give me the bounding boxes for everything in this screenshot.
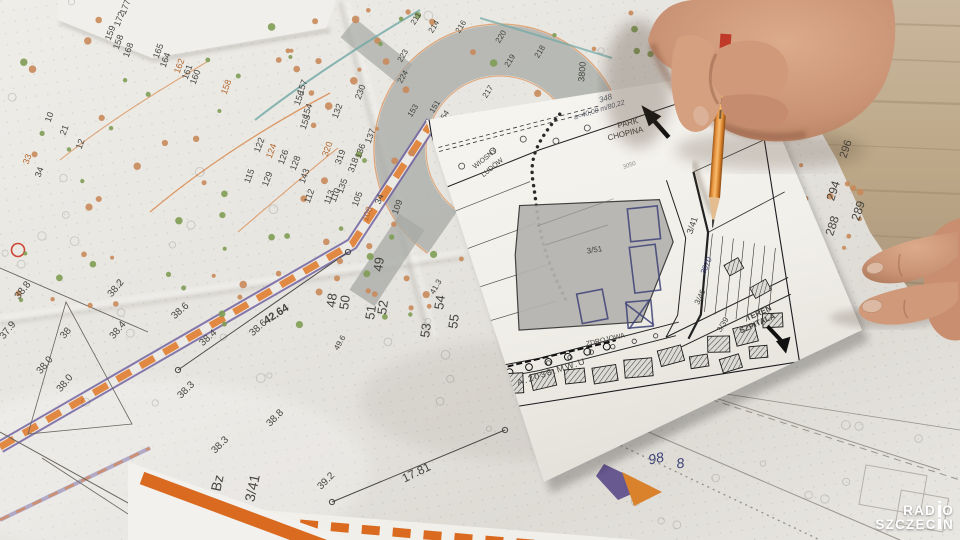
tree-dot <box>352 16 360 24</box>
tree-dot <box>80 179 84 183</box>
tree-dot <box>237 295 242 300</box>
tree-dot <box>337 258 343 264</box>
tree-dot <box>857 189 864 196</box>
tree-dot <box>95 17 102 24</box>
tree-dot <box>325 102 333 110</box>
tree-dot <box>236 74 241 79</box>
tree-dot <box>846 234 851 239</box>
tree-dot <box>309 90 315 96</box>
tree-dot <box>312 18 318 24</box>
tree-dot <box>399 17 404 22</box>
tree-dot <box>323 239 330 246</box>
tree-dot <box>366 243 372 249</box>
tree-dot <box>409 305 414 310</box>
tree-dot <box>339 226 344 231</box>
tree-dot <box>490 59 498 67</box>
tree-dot <box>316 289 323 296</box>
tree-dot <box>378 42 383 47</box>
tree-dot <box>40 131 45 136</box>
map-label: Bz <box>208 473 227 492</box>
tree-dot <box>372 291 378 297</box>
tree-dot <box>592 47 597 52</box>
tree-dot <box>408 150 414 156</box>
tree-dot <box>311 123 317 129</box>
tree-dot <box>29 65 37 73</box>
tree-dot <box>50 297 54 301</box>
radio-szczecin-logo: RADO SZCZECN <box>875 504 954 532</box>
hand-fingers-front <box>671 35 788 132</box>
tree-dot <box>276 271 282 277</box>
tree-dot <box>284 233 290 239</box>
tree-dot <box>146 92 151 97</box>
tree-dot <box>221 191 228 198</box>
tree-dot <box>88 303 93 308</box>
tree-dot <box>268 234 275 241</box>
logo-line-1: RADO <box>875 504 954 518</box>
tree-dot <box>534 90 541 97</box>
tree-dot <box>110 256 114 260</box>
tree-dot <box>288 55 292 59</box>
tree-dot <box>84 37 91 44</box>
map-label: 49 <box>370 256 387 272</box>
tree-dot <box>362 158 367 163</box>
tree-dot <box>366 288 371 293</box>
tree-dot <box>205 58 210 63</box>
map-label: 52 <box>374 299 391 315</box>
tree-dot <box>296 321 303 328</box>
tree-dot <box>404 275 410 281</box>
tree-dot <box>293 66 300 73</box>
tree-dot <box>109 126 113 130</box>
map-label: 50 <box>336 294 353 310</box>
tree-dot <box>219 212 225 218</box>
tree-dot <box>268 23 276 31</box>
tree-dot <box>628 11 633 16</box>
index-finger <box>710 40 789 103</box>
tree-dot <box>350 77 358 85</box>
map-label: 55 <box>445 313 462 329</box>
photo-of-maps-on-table: 1771721591581681651641621611601581021123… <box>0 0 960 540</box>
tree-dot <box>134 163 141 170</box>
tree-dot <box>223 247 227 251</box>
logo-line-2: SZCZECN <box>875 518 954 532</box>
tree-dot <box>239 281 247 289</box>
tree-dot <box>334 275 340 281</box>
tree-dot <box>391 222 396 227</box>
tree-dot <box>430 251 437 258</box>
logo-i-bar <box>938 519 941 529</box>
tree-dot <box>212 274 216 278</box>
tree-dot <box>99 115 105 121</box>
tree-dot <box>193 136 199 142</box>
tree-dot <box>56 275 63 282</box>
tree-dot <box>408 312 412 316</box>
tree-dot <box>90 261 97 268</box>
tree-dot <box>403 86 410 93</box>
tree-dot <box>276 57 282 63</box>
tree-dot <box>286 48 291 53</box>
tree-dot <box>219 311 226 318</box>
map-label: 53 <box>417 322 434 338</box>
logo-i-bar <box>938 505 941 515</box>
tree-dot <box>23 252 27 256</box>
tree-dot <box>20 59 27 66</box>
tree-dot <box>181 286 186 291</box>
tree-dot <box>842 246 846 250</box>
tree-dot <box>217 109 221 113</box>
tree-dot <box>81 252 87 258</box>
tree-dot <box>67 147 71 151</box>
tree-dot <box>366 8 371 13</box>
tree-dot <box>175 217 182 224</box>
tree-dot <box>405 9 410 14</box>
tree-dot <box>357 68 361 72</box>
tree-dot <box>552 33 556 37</box>
scene-svg: 1771721591581681651641621611601581021123… <box>0 0 960 540</box>
tree-dot <box>383 58 390 65</box>
tree-dot <box>391 157 398 164</box>
tree-dot <box>470 49 476 55</box>
tree-dot <box>123 78 127 82</box>
tree-dot <box>389 234 394 239</box>
tree-dot <box>202 180 207 185</box>
tree-dot <box>85 204 92 211</box>
tree-dot <box>845 181 850 186</box>
tree-dot <box>222 322 227 327</box>
tree-dot <box>850 185 856 191</box>
tree-dot <box>96 196 102 202</box>
tree-dot <box>459 257 464 262</box>
tree-dot <box>321 177 328 184</box>
tree-dot <box>162 140 168 146</box>
tree-dot <box>166 272 171 277</box>
tree-dot <box>113 301 119 307</box>
map-label: 54 <box>431 294 448 310</box>
map-label: 3800 <box>576 61 588 82</box>
tree-dot <box>315 58 321 64</box>
